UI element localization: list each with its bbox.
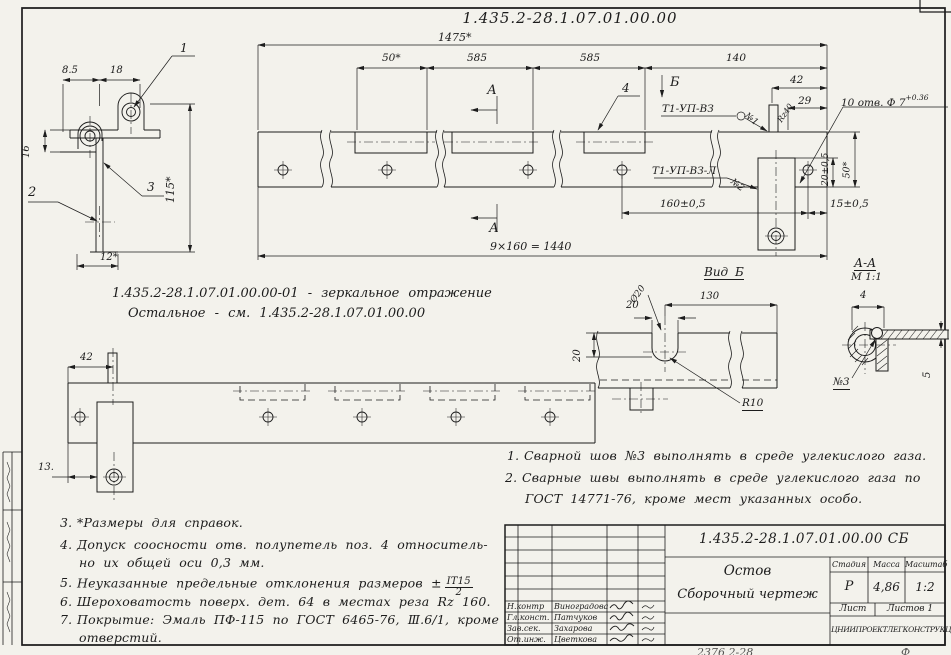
note-4-text-line1: Допуск соосности отв. полупетель поз. 4 … (77, 539, 488, 552)
dim-42-bottom: 42 (80, 353, 93, 363)
sig-name-zavsek: Захарова (554, 625, 592, 633)
holes-callout-text: 10 отв. Ф 7 (841, 97, 906, 109)
dim-8-5: 8.5 (62, 66, 78, 76)
view-b-dims (586, 295, 777, 403)
note-1-num: 1. (507, 450, 519, 463)
section-mark-a-bottom: А (489, 222, 499, 235)
drawing-sheet: 1.435.2-28.1.07.01.00.00 8.5 18 1 16 115… (0, 0, 951, 655)
view-b-dim-20-left: 20 (573, 349, 583, 362)
title-block-mass-value: 4,86 (868, 581, 905, 593)
title-block-scale-value: 1:2 (905, 581, 945, 593)
title-block-sheet-label: Лист (831, 605, 875, 614)
dim-20-vertical: 20±0,5 (822, 153, 831, 186)
note-7-text-line1: Покрытие: Эмаль ПФ-115 по ГОСТ 6465-76, … (77, 614, 499, 627)
footer-cut-right: Ф (901, 647, 910, 655)
note-5-fraction-numerator: IT15 (445, 577, 473, 588)
note-2-text-line1: Сварные швы выполнять в среде углекислог… (522, 472, 921, 485)
weld-label-1: Т1-УП-ВЗ (662, 104, 714, 115)
detail-view-lines (60, 93, 160, 252)
title-block-org: ЦНИИПРОЕКТЛЕГКОНСТРУКЦИЯ (831, 626, 944, 634)
title-block-name-line2: Сборочный чертеж (665, 588, 830, 601)
weld-label-2: Т1-УП-ВЗ-Л (652, 166, 716, 177)
dim-29: 29 (798, 96, 811, 107)
note-2-text-line2: ГОСТ 14771-76, кроме мест указанных особ… (525, 493, 862, 506)
dim-585-1: 585 (467, 53, 487, 64)
sig-name-glkonst: Патчуков (554, 614, 597, 622)
title-block-doc-number: 1.435.2-28.1.07.01.00.00 СБ (668, 533, 940, 547)
callout-3: 3 (147, 181, 155, 193)
holes-callout: 10 отв. Ф 7+0.36 (841, 94, 928, 109)
section-aa-weld-no: №3 (833, 377, 850, 390)
doc-number-top: 1.435.2-28.1.07.01.00.00 (430, 11, 710, 26)
signature-scribbles (610, 601, 654, 641)
dim-50-vertical: 50* (843, 162, 853, 179)
dim-16: 16 (22, 145, 32, 158)
note-4-num: 4. (60, 539, 72, 552)
note-6-text: Шероховатость поверх. дет. 64 в местах р… (77, 596, 491, 609)
detail-view-dims (28, 56, 195, 270)
note-7-text-line2: отверстий. (79, 632, 162, 645)
title-block-sheets-label: Листов 1 (876, 605, 944, 614)
sig-role-otinzh: От.инж. (507, 636, 546, 644)
callout-2: 2 (28, 186, 36, 199)
dim-row-total: 9×160 = 1440 (490, 241, 571, 252)
callout-4: 4 (622, 82, 630, 94)
title-block-stage-value: Р (830, 580, 868, 593)
dim-585-2: 585 (580, 53, 600, 64)
note-3-num: 3. (60, 517, 72, 530)
callout-1: 1 (180, 42, 188, 54)
dim-13: 13. (38, 463, 54, 473)
note-5-body: Неуказанные предельные отклонения размер… (77, 576, 442, 591)
section-mark-a-top: А (487, 84, 497, 97)
note-4-text-line2: но их общей оси 0,3 мм. (79, 557, 265, 570)
note-7-num: 7. (60, 614, 72, 627)
sig-role-glkonst: Гл.конст. (507, 614, 549, 622)
sig-name-nkontr: Виноградова (554, 603, 608, 611)
dim-140: 140 (726, 53, 746, 64)
section-aa-dims (852, 307, 949, 378)
section-mark-b: Б (670, 76, 680, 89)
dim-115: 115* (165, 177, 176, 204)
view-b-dim-130: 130 (700, 292, 719, 302)
title-block-mass-header: Масса (868, 561, 905, 569)
section-aa-scale: М 1:1 (851, 272, 882, 283)
dim-50: 50* (382, 53, 401, 64)
dim-160: 160±0,5 (660, 199, 706, 210)
bottom-view-lines (68, 348, 597, 500)
view-b-title: Вид Б (704, 266, 744, 280)
section-aa-title: А-А (854, 257, 876, 271)
mirror-note-line1: 1.435.2-28.1.07.01.00.00-01 - зеркальное… (112, 287, 492, 300)
note-1-text: Сварной шов №3 выполнять в среде углекис… (524, 450, 926, 463)
main-view-lines (258, 105, 827, 256)
note-6-num: 6. (60, 596, 72, 609)
sig-name-otinzh: Цветкова (554, 636, 597, 644)
note-2-num: 2. (505, 472, 517, 485)
title-block-scale-header: Масштаб (905, 561, 945, 569)
title-block-stage-header: Стадия (830, 561, 868, 569)
view-b-radius: R10 (742, 398, 763, 411)
note-5-num: 5. (60, 577, 72, 590)
note-3-text: *Размеры для справок. (77, 517, 243, 530)
dim-18: 18 (110, 66, 123, 76)
sig-role-nkontr: Н.контр (507, 603, 544, 611)
mirror-note-line2: Остальное - см. 1.435.2-28.1.07.01.00.00 (128, 307, 425, 320)
section-aa-dim-5: 5 (923, 372, 933, 378)
holes-callout-tolerance: +0.36 (906, 93, 929, 102)
footer-cut-left: 2376 2-28 (697, 647, 753, 655)
dim-42-main: 42 (790, 75, 803, 86)
sig-role-zavsek: Зав.сек. (507, 625, 541, 633)
dim-12: 12* (100, 253, 118, 263)
dim-1475: 1475* (438, 32, 472, 43)
section-aa-dim-4: 4 (860, 291, 866, 301)
title-block-name-line1: Остов (665, 565, 830, 579)
dim-15: 15±0,5 (830, 199, 869, 210)
